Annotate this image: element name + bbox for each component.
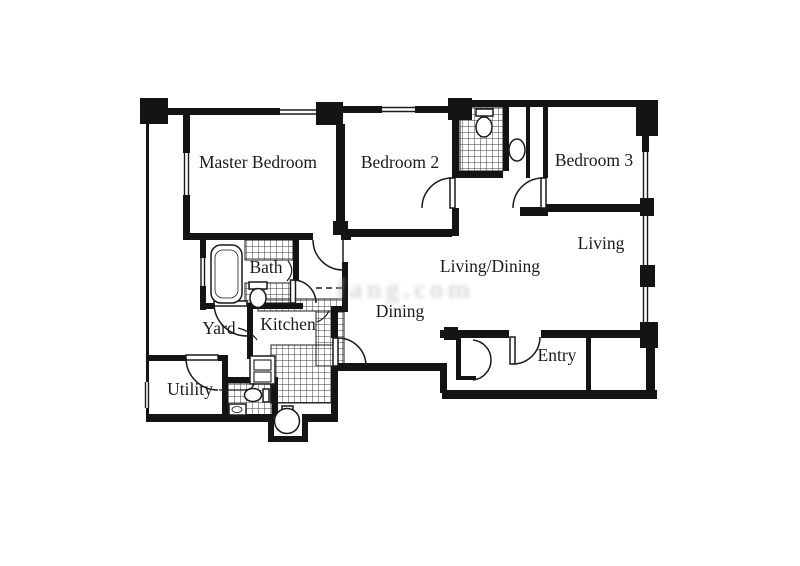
toilet-icon	[245, 389, 270, 403]
room-label-master-bedroom: Master Bedroom	[199, 152, 317, 172]
sink-icon	[229, 404, 246, 415]
room-label-bath: Bath	[249, 257, 282, 277]
room-label-yard: Yard	[202, 318, 235, 338]
watermark: fang.com	[336, 274, 474, 304]
room-label-dining: Dining	[376, 301, 425, 321]
floor-plan-drawing: fang.com Master Bedroom Bedroom 2 Bedroo…	[0, 0, 800, 566]
room-label-kitchen: Kitchen	[260, 314, 316, 334]
room-label-living: Living	[578, 233, 625, 253]
kitchen-sink-icon	[250, 356, 275, 384]
room-label-bedroom-3: Bedroom 3	[555, 150, 634, 170]
room-label-living-dining: Living/Dining	[440, 256, 540, 276]
room-label-bedroom-2: Bedroom 2	[361, 152, 439, 172]
toilet-icon	[249, 282, 267, 308]
room-label-utility: Utility	[167, 379, 213, 399]
sink-icon	[509, 139, 525, 161]
floor-plan-page: fang.com Master Bedroom Bedroom 2 Bedroo…	[0, 0, 800, 566]
room-label-entry: Entry	[538, 345, 577, 365]
toilet-icon	[476, 109, 493, 137]
bathtub-icon	[211, 245, 242, 303]
